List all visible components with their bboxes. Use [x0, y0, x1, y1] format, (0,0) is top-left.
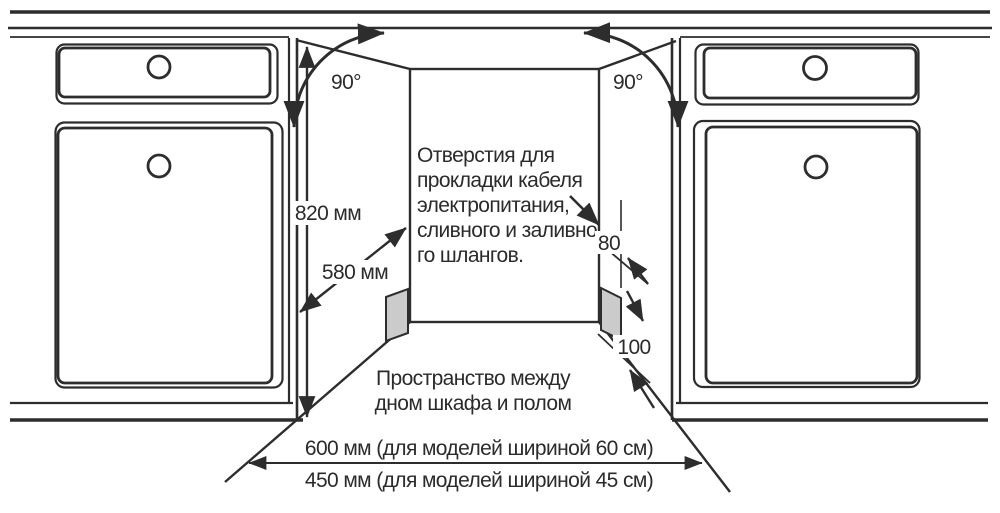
left-door-knob-icon [148, 155, 170, 177]
floor-gap-note-line-2: дном шкафа и полом [375, 392, 572, 415]
hole-dim-arrow-up [628, 258, 648, 284]
holes-note: Отверстия для прокладки кабеля электропи… [417, 144, 599, 267]
right-door-knob-icon [805, 156, 827, 178]
niche-top-right-edge [599, 41, 676, 69]
left-wall-cable-hole [386, 289, 408, 341]
floor-gap-note-line-1: Пространство между [376, 367, 571, 390]
installation-diagram-svg: 90° 90° 820 мм 580 мм Отверстия для прок… [0, 0, 1000, 513]
holes-note-line-1: Отверстия для [417, 144, 554, 167]
holes-note-line-4: сливного и заливно [417, 219, 597, 242]
countertop-lines [8, 12, 992, 37]
right-drawer [696, 45, 919, 105]
right-wall-cable-hole [601, 288, 621, 340]
left-drawer [57, 45, 278, 104]
width-dimension: 600 мм (для моделей шириной 60 см) 450 м… [249, 437, 702, 492]
holes-note-line-5: го шлангов. [417, 244, 523, 267]
hole-dim-arrow-down [627, 291, 643, 321]
holes-note-line-2: прокладки кабеля [417, 169, 582, 192]
niche-top-left-edge [296, 40, 410, 69]
depth-label: 580 мм [322, 261, 388, 284]
right-cabinet [672, 38, 920, 420]
left-door [56, 123, 283, 388]
hole-floor-dim-label: 100 [617, 336, 650, 359]
width-60-label: 600 мм (для моделей шириной 60 см) [305, 437, 653, 460]
holes-note-line-3: электропитания, [417, 194, 569, 217]
hole-dim-label: 80 [598, 232, 620, 255]
right-door [694, 121, 920, 387]
left-cabinet [56, 38, 298, 420]
left-door-angle-label: 90° [331, 71, 361, 94]
height-label: 820 мм [295, 202, 361, 225]
floor-gap-note: Пространство между дном шкафа и полом [375, 367, 572, 415]
left-drawer-knob-icon [148, 56, 170, 78]
right-door-angle-label: 90° [613, 71, 643, 94]
height-dimension: 820 мм [294, 47, 363, 417]
right-drawer-knob-icon [804, 57, 827, 80]
dishwasher-installation-diagram: 90° 90° 820 мм 580 мм Отверстия для прок… [0, 0, 1000, 513]
width-45-label: 450 мм (для моделей шириной 45 см) [305, 469, 653, 492]
